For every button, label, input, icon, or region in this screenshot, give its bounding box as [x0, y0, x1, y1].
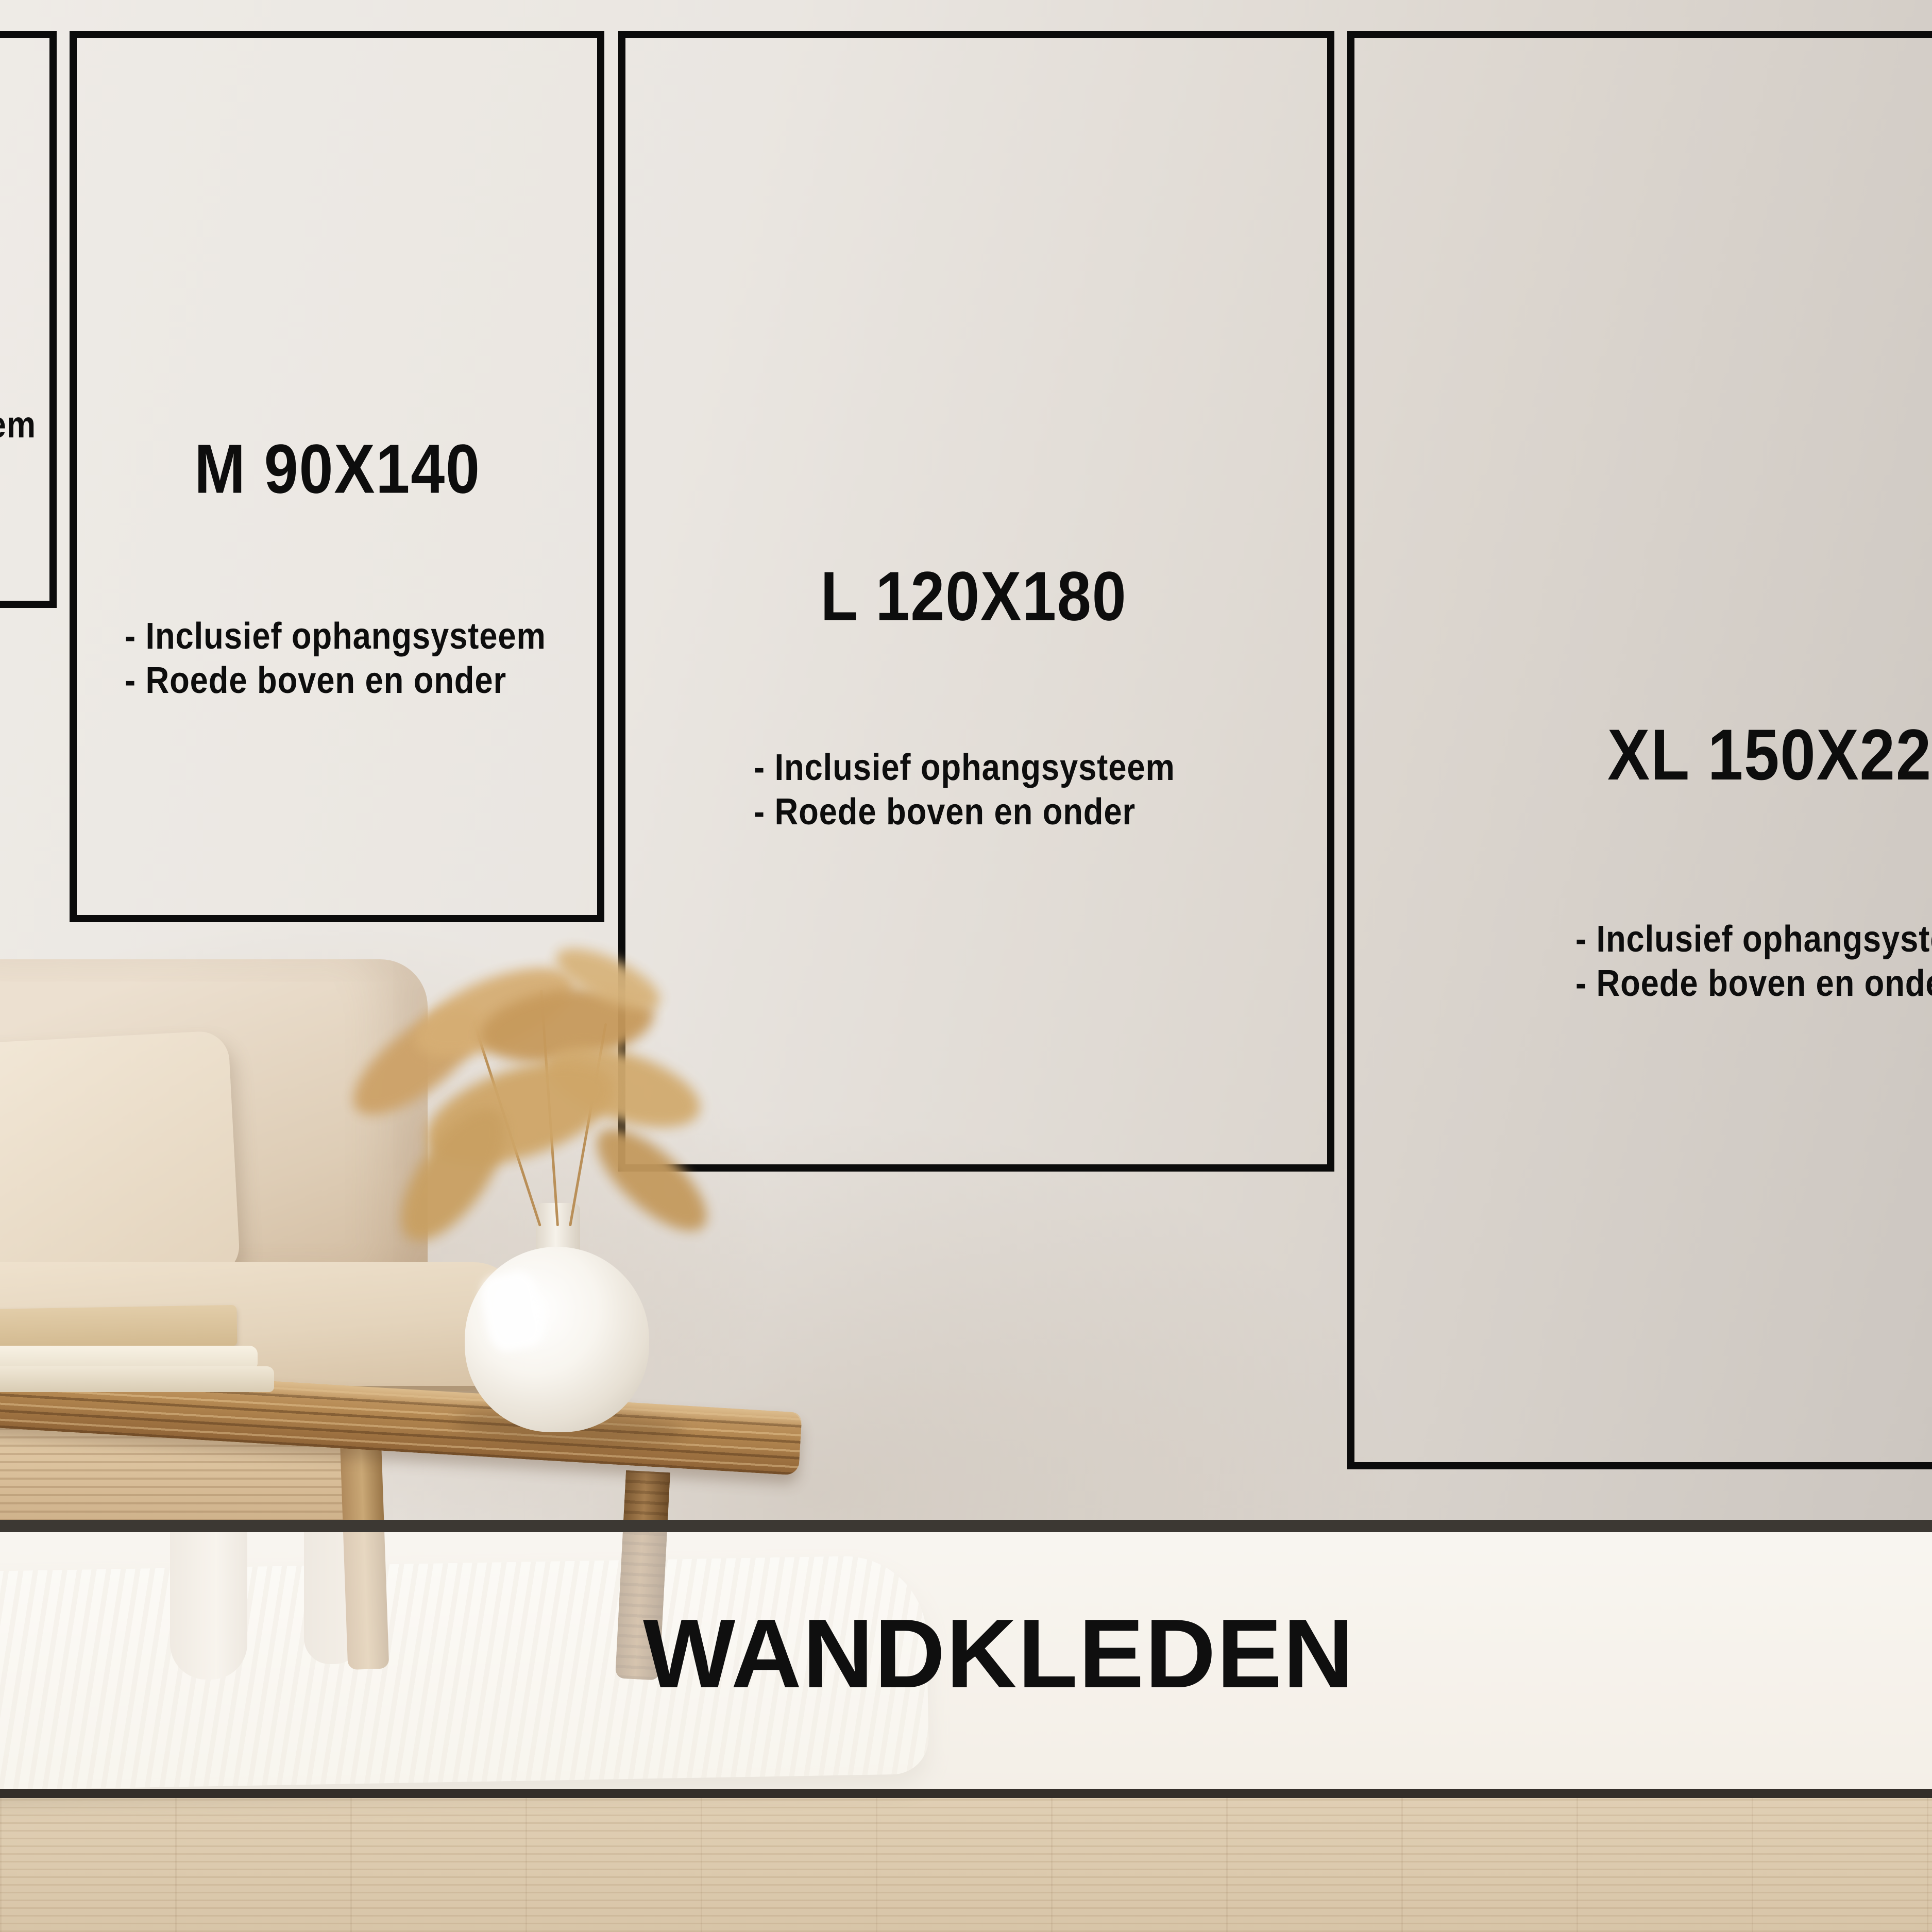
banner-bottom-line — [0, 1789, 1932, 1798]
book-pages — [0, 1346, 258, 1368]
size-m-bullet-ophangsysteem: - Inclusief ophangsysteem — [125, 615, 546, 657]
book — [0, 1305, 238, 1351]
banner-title: WANDKLEDEN — [643, 1598, 1355, 1710]
poster-canvas: - Inclusief ophangsysteem M 90X140 - Inc… — [0, 0, 1932, 1932]
size-s-bullet-ophangsysteem: - Inclusief ophangsysteem — [0, 404, 36, 446]
size-xl-bullet-ophangsysteem: - Inclusief ophangsysteem — [1575, 918, 1932, 960]
size-card-s-partial — [0, 31, 57, 608]
size-l-bullet-roede: - Roede boven en onder — [754, 791, 1136, 833]
size-xl-title: XL 150X220 — [1607, 713, 1932, 796]
size-l-bullet-ophangsysteem: - Inclusief ophangsysteem — [754, 747, 1175, 789]
size-xl-bullet-roede: - Roede boven en onder — [1575, 962, 1932, 1005]
size-m-bullet-roede: - Roede boven en onder — [125, 659, 506, 702]
book — [0, 1366, 274, 1392]
banner-top-line — [0, 1520, 1932, 1532]
size-m-title: M 90X140 — [194, 429, 481, 509]
size-l-title: L 120X180 — [821, 556, 1127, 636]
wood-floor — [0, 1798, 1932, 1932]
sofa-pillow — [0, 1030, 241, 1291]
